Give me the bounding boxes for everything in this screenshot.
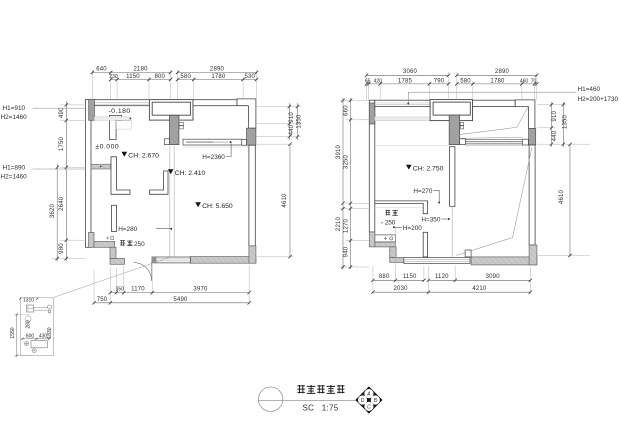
svg-text:CH: 2.750: CH: 2.750 xyxy=(413,165,444,172)
svg-text:1150: 1150 xyxy=(403,274,417,280)
svg-text:CH: 5.650: CH: 5.650 xyxy=(202,203,233,210)
svg-text:H1=460: H1=460 xyxy=(578,86,601,93)
svg-text:2890: 2890 xyxy=(495,69,510,75)
svg-text:750: 750 xyxy=(97,297,108,303)
svg-text:5490: 5490 xyxy=(173,297,188,303)
svg-text:1830: 1830 xyxy=(47,327,53,338)
svg-text:1150: 1150 xyxy=(126,74,140,80)
svg-text:H1=910: H1=910 xyxy=(3,105,26,112)
svg-text:4610: 4610 xyxy=(282,193,288,208)
svg-text:1350: 1350 xyxy=(563,114,569,129)
svg-text:250: 250 xyxy=(385,219,396,226)
svg-text:1780: 1780 xyxy=(211,74,226,80)
svg-text:910: 910 xyxy=(552,110,558,121)
svg-text:230: 230 xyxy=(109,74,118,80)
svg-text:440: 440 xyxy=(552,130,558,141)
svg-text:70: 70 xyxy=(531,79,537,85)
svg-text:880: 880 xyxy=(379,274,390,280)
svg-text:940: 940 xyxy=(344,246,350,257)
svg-text:600: 600 xyxy=(26,333,35,339)
svg-text:440: 440 xyxy=(289,124,295,135)
svg-text:1780: 1780 xyxy=(490,79,505,85)
svg-text:1170: 1170 xyxy=(131,287,145,293)
svg-text:3060: 3060 xyxy=(403,69,418,75)
svg-text:H2=1460: H2=1460 xyxy=(1,114,28,121)
svg-text:460: 460 xyxy=(520,79,529,85)
svg-text:640: 640 xyxy=(96,66,107,72)
svg-text:A: A xyxy=(366,392,371,398)
svg-text:800: 800 xyxy=(154,74,165,80)
svg-text:790: 790 xyxy=(434,79,445,85)
svg-text:1310: 1310 xyxy=(23,298,34,304)
svg-text:CH: 2.410: CH: 2.410 xyxy=(175,170,206,177)
svg-text:4210: 4210 xyxy=(472,286,487,292)
svg-text:H=270: H=270 xyxy=(413,188,432,195)
svg-text:1750: 1750 xyxy=(59,136,65,151)
svg-text:CH: 2.670: CH: 2.670 xyxy=(128,153,159,160)
svg-text:2210: 2210 xyxy=(336,216,342,231)
svg-text:H1=890: H1=890 xyxy=(3,164,26,171)
svg-text:1550: 1550 xyxy=(10,327,16,338)
svg-text:2030: 2030 xyxy=(394,286,409,292)
svg-text:65: 65 xyxy=(365,79,371,85)
svg-text:660: 660 xyxy=(344,105,350,116)
svg-text:3970: 3970 xyxy=(193,287,208,293)
svg-text:1785: 1785 xyxy=(398,79,413,85)
svg-text:H2=1460: H2=1460 xyxy=(1,173,28,180)
svg-text:980: 980 xyxy=(59,243,65,254)
svg-text:3620: 3620 xyxy=(50,203,56,218)
svg-text:530: 530 xyxy=(244,74,255,80)
svg-text:490: 490 xyxy=(59,107,65,118)
svg-text:2180: 2180 xyxy=(134,66,149,72)
svg-text:H=350: H=350 xyxy=(421,217,440,224)
svg-text:D: D xyxy=(361,398,365,404)
svg-text:420: 420 xyxy=(374,79,383,85)
svg-text:H=280: H=280 xyxy=(118,226,137,233)
svg-text:280: 280 xyxy=(25,320,31,329)
svg-text:±0.000: ±0.000 xyxy=(95,144,119,151)
svg-text:SC 1:75: SC 1:75 xyxy=(302,403,338,412)
svg-text:H=2360: H=2360 xyxy=(202,154,225,161)
svg-text:1350: 1350 xyxy=(297,114,303,129)
svg-text:H2=200+1730: H2=200+1730 xyxy=(578,96,619,103)
svg-text:1270: 1270 xyxy=(344,218,350,233)
svg-text:H=200: H=200 xyxy=(403,225,422,232)
svg-text:2890: 2890 xyxy=(210,66,225,72)
svg-text:4610: 4610 xyxy=(559,189,565,204)
svg-text:3910: 3910 xyxy=(336,144,342,159)
svg-text:2640: 2640 xyxy=(59,196,65,211)
svg-text:1120: 1120 xyxy=(435,274,449,280)
svg-text:250: 250 xyxy=(134,241,145,248)
svg-text:580: 580 xyxy=(460,79,471,85)
svg-text:580: 580 xyxy=(180,74,191,80)
svg-text:3250: 3250 xyxy=(344,154,350,169)
svg-text:350: 350 xyxy=(116,286,125,292)
svg-text:C: C xyxy=(367,405,371,411)
svg-text:-0.180: -0.180 xyxy=(108,108,130,115)
svg-text:910: 910 xyxy=(289,112,295,123)
svg-text:3090: 3090 xyxy=(486,274,501,280)
